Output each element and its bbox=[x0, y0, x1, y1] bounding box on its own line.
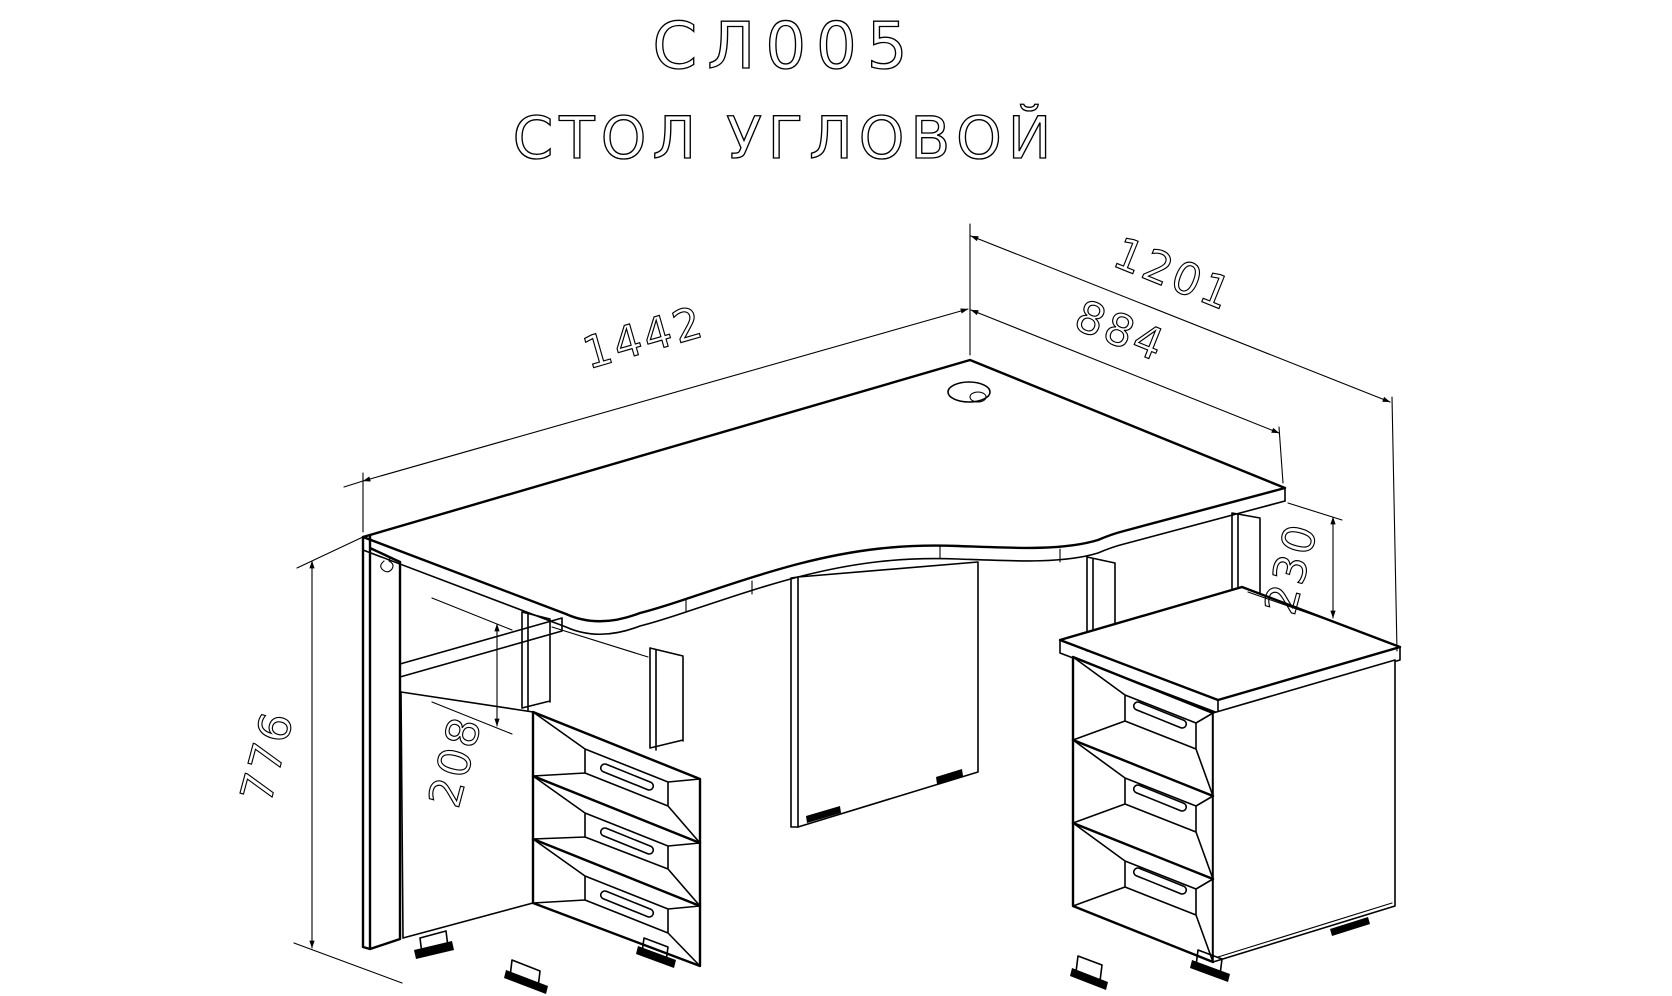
niche-shelf bbox=[400, 618, 562, 677]
corner-desk-diagram: СЛ005 СТОЛ УГЛОВОЙ bbox=[0, 0, 1672, 996]
left-support-column-1 bbox=[522, 612, 550, 710]
dim-desk-width: 1442 bbox=[577, 296, 710, 379]
dim-desk-height: 776 bbox=[231, 705, 304, 808]
technical-drawing-page: СЛ005 СТОЛ УГЛОВОЙ bbox=[0, 0, 1672, 996]
right-pedestal bbox=[1060, 513, 1400, 990]
dimension-230: 230 bbox=[1248, 503, 1342, 625]
product-name: СТОЛ УГЛОВОЙ bbox=[513, 103, 1057, 172]
left-side-panel bbox=[363, 535, 400, 949]
right-pedestal-side bbox=[1213, 660, 1395, 962]
left-support-column-2 bbox=[650, 648, 683, 750]
model-code: СЛ005 bbox=[653, 10, 918, 84]
modesty-panel bbox=[791, 562, 978, 827]
dim-top-to-pedestal-gap: 230 bbox=[1255, 517, 1328, 620]
dimension-776: 776 bbox=[231, 536, 402, 983]
title-block: СЛ005 СТОЛ УГЛОВОЙ bbox=[513, 10, 1057, 172]
niche-back-edge bbox=[552, 627, 648, 657]
dim-right-back-edge: 884 bbox=[1068, 290, 1173, 372]
left-pedestal-front bbox=[533, 712, 700, 966]
